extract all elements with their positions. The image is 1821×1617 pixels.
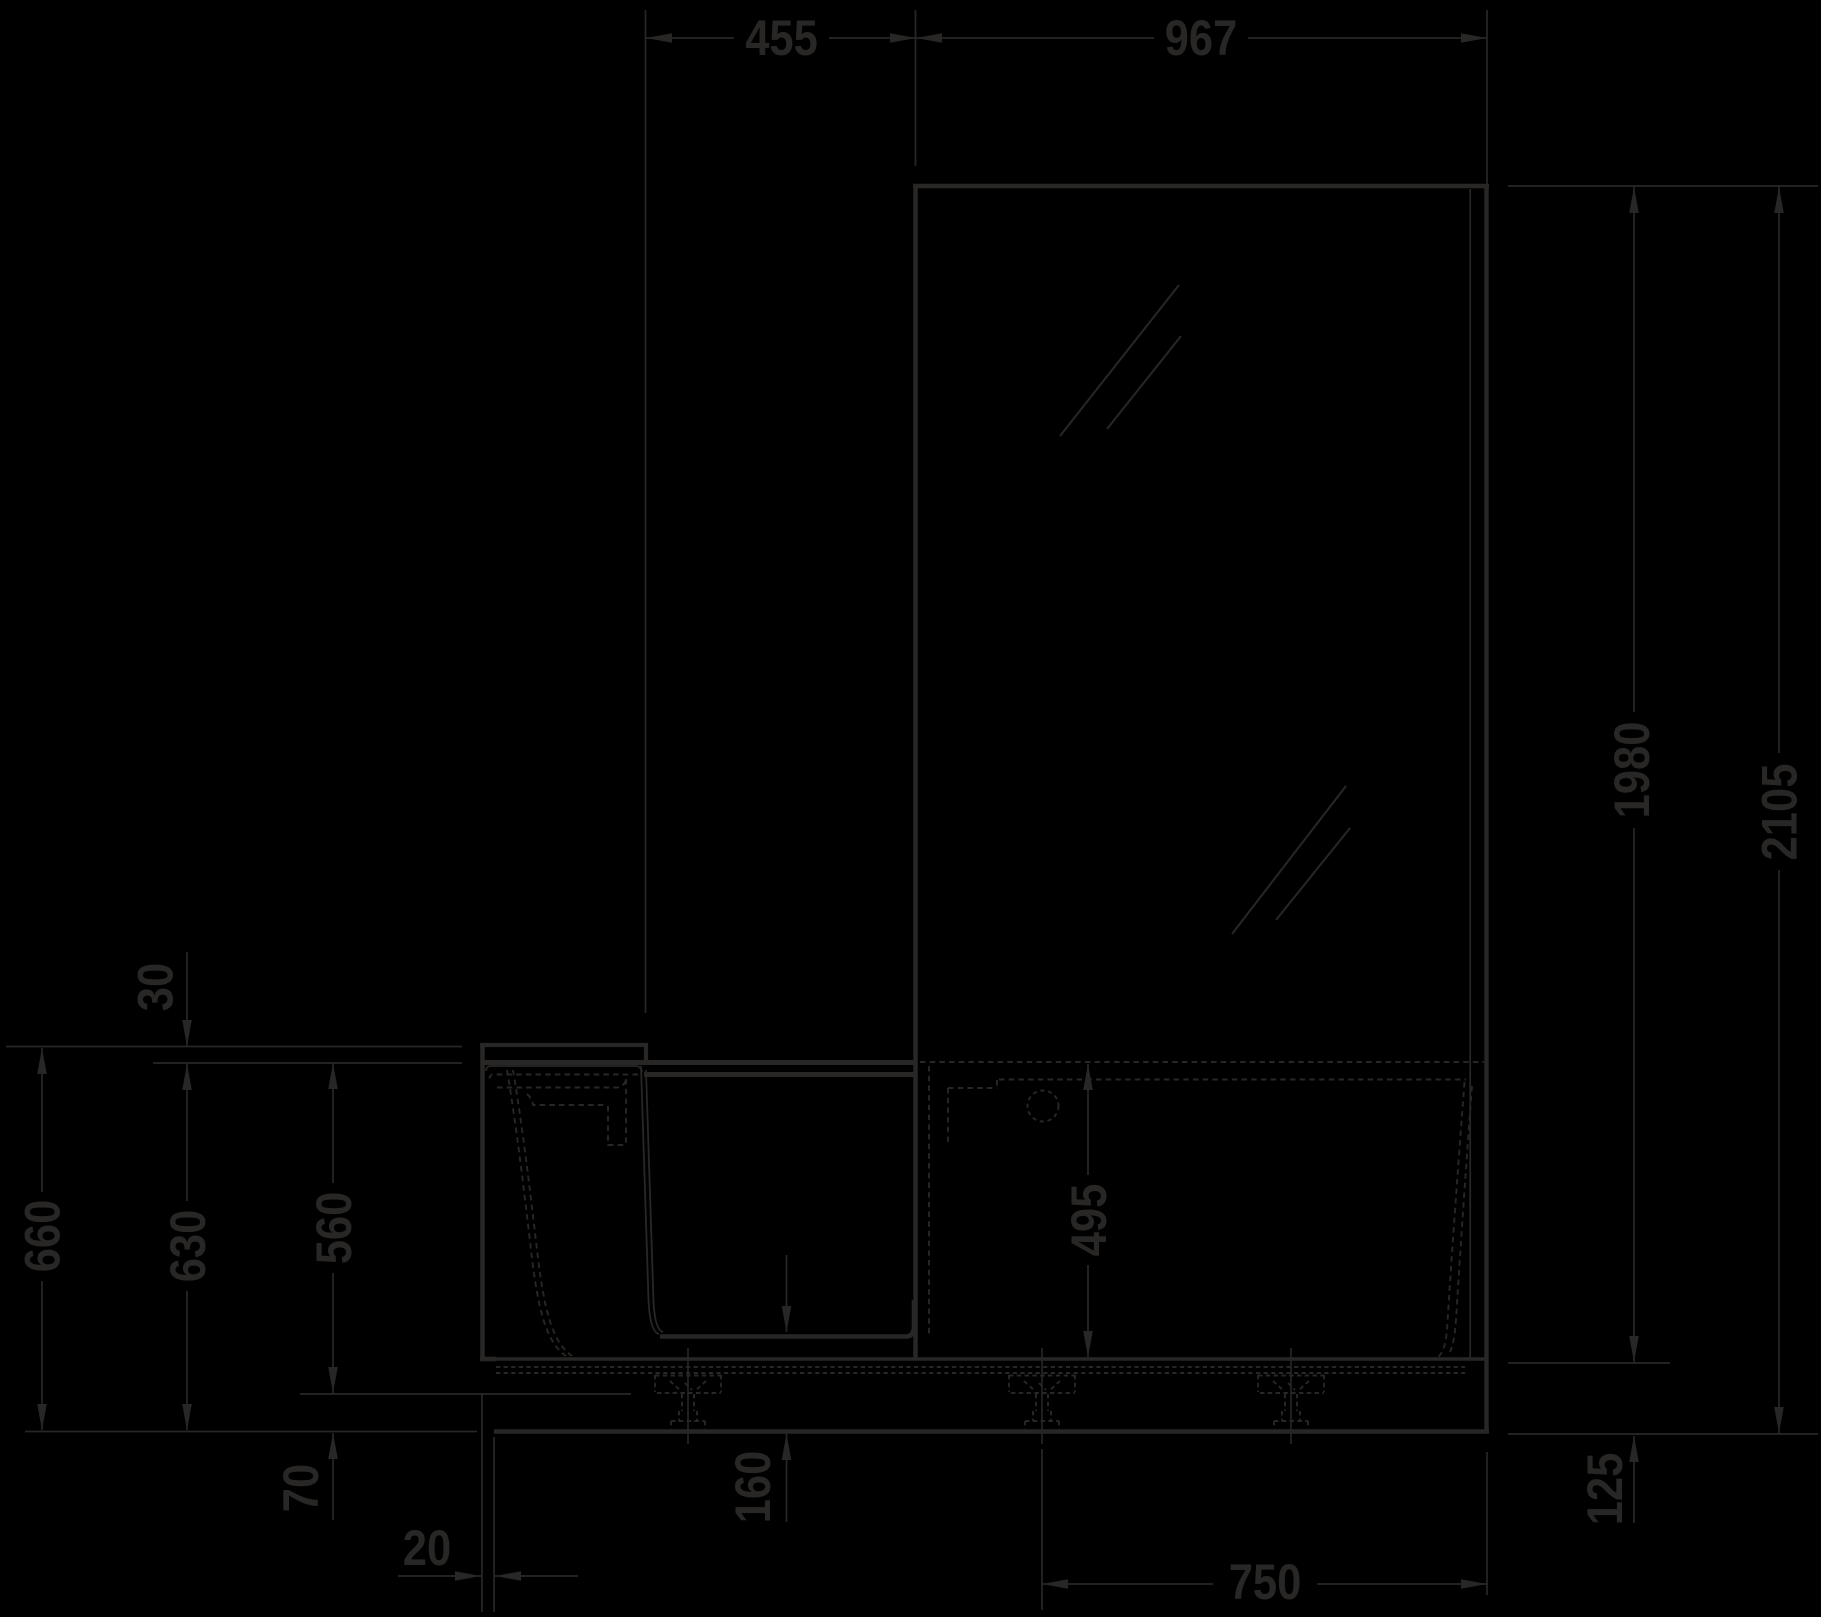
svg-text:125: 125: [1577, 1453, 1632, 1526]
svg-text:455: 455: [745, 10, 818, 65]
svg-text:750: 750: [1229, 1554, 1302, 1609]
svg-text:967: 967: [1165, 10, 1238, 65]
svg-text:560: 560: [306, 1192, 361, 1265]
svg-text:1980: 1980: [1604, 722, 1659, 819]
svg-text:2105: 2105: [1752, 764, 1807, 861]
svg-text:30: 30: [128, 963, 183, 1011]
svg-text:630: 630: [160, 1210, 215, 1283]
svg-text:70: 70: [273, 1464, 328, 1512]
svg-text:495: 495: [1061, 1184, 1116, 1257]
svg-text:660: 660: [15, 1200, 70, 1273]
svg-text:160: 160: [725, 1451, 780, 1524]
svg-text:20: 20: [403, 1520, 451, 1575]
